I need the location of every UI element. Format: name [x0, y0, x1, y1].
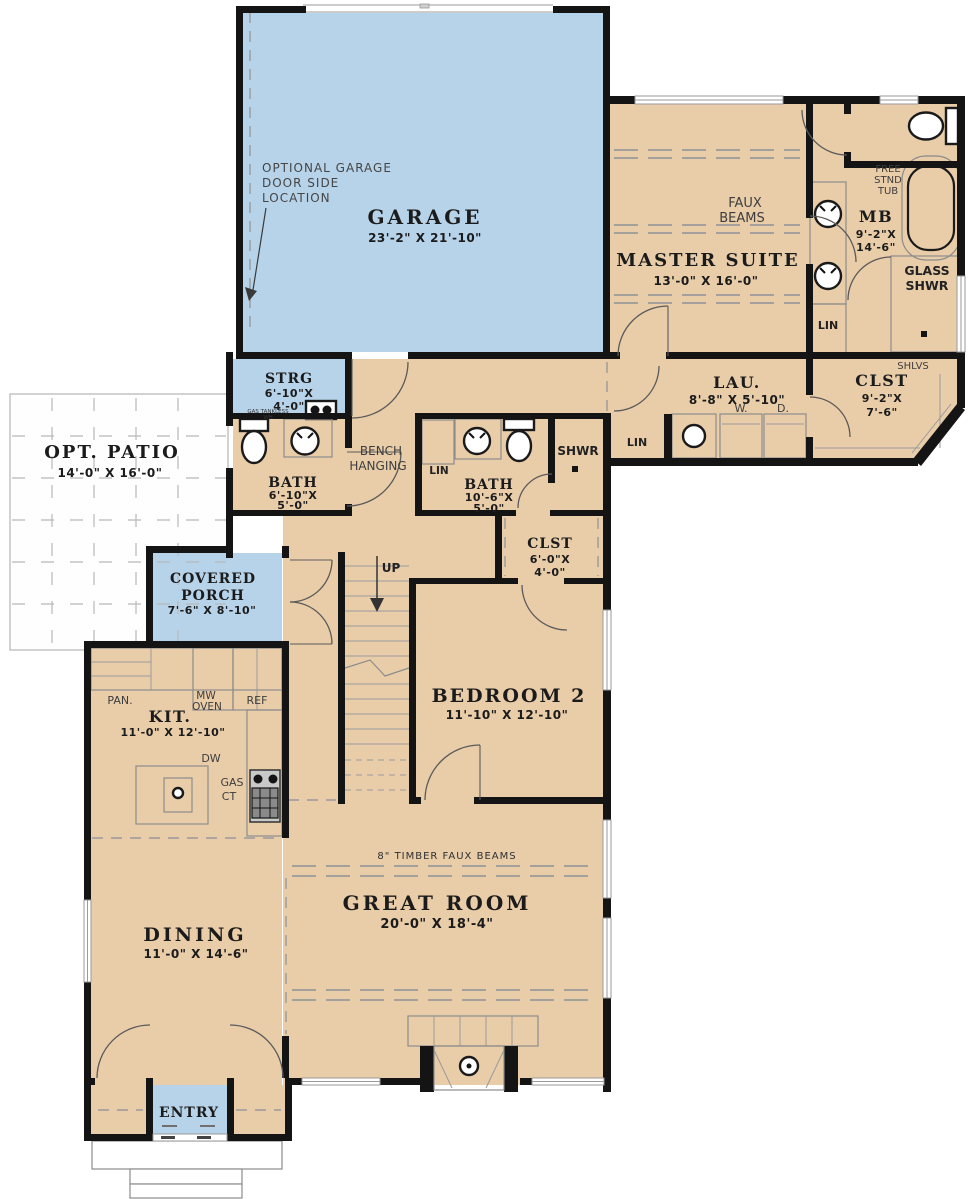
laundry-label: LAU. — [713, 373, 761, 392]
bath2-dims2: 5'-0" — [473, 502, 504, 515]
tub-label-line3: TUB — [877, 186, 898, 197]
porch-label2: PORCH — [181, 588, 245, 604]
front-door — [153, 1134, 227, 1141]
dishwasher-label: DW — [201, 752, 220, 765]
window — [603, 820, 611, 898]
washer-label: W. — [734, 402, 747, 415]
mb-sink-1 — [815, 201, 841, 227]
bench-label1: BENCH — [360, 444, 402, 458]
master-bath-dims1: 9'-2"X — [856, 228, 896, 241]
refrigerator-label: REF — [247, 694, 268, 707]
faux-beams-line2: BEAMS — [719, 211, 765, 226]
bedroom-closet-label: CLST — [527, 536, 573, 552]
dining-label: DINING — [143, 924, 246, 946]
stairs-up-label: UP — [382, 561, 401, 575]
laundry-sink — [683, 425, 705, 447]
timber-beams-label: 8" TIMBER FAUX BEAMS — [377, 851, 516, 862]
master-suite-dims: 13'-0" X 16'-0" — [653, 274, 758, 288]
bedroom-closet-dims2: 4'-0" — [534, 566, 565, 579]
bath2-toilet — [507, 431, 531, 461]
garage-note-line1: OPTIONAL GARAGE — [262, 161, 392, 175]
bedroom-closet-dims1: 6'-0"X — [530, 553, 570, 566]
bath2-toilet-tank — [504, 419, 534, 430]
master-closet-dims1: 9'-2"X — [862, 392, 902, 405]
tub-label-line2: STND — [874, 175, 902, 186]
master-bath-dims2: 14'-6" — [856, 241, 896, 254]
glass-shower-label1: GLASS — [904, 263, 949, 278]
hall-linen-label: LIN — [627, 436, 647, 449]
great-room-label: GREAT ROOM — [343, 891, 532, 915]
pantry-label: PAN. — [107, 694, 132, 707]
shower-head — [921, 331, 927, 337]
cooktop-label1: GAS — [220, 776, 243, 789]
bath1-dims2: 5'-0" — [277, 499, 308, 512]
storage-label: STRG — [265, 371, 313, 387]
floor-plan-page: OPTIONAL GARAGE DOOR SIDE LOCATION GARAG… — [0, 0, 970, 1199]
window — [880, 96, 918, 104]
garage-label: GARAGE — [367, 205, 482, 229]
bath2-shower-head — [572, 466, 578, 472]
glass-shower-label2: SHWR — [906, 278, 949, 293]
window — [302, 1078, 380, 1085]
microwave-label2: OVEN — [192, 701, 222, 713]
faux-beams-line1: FAUX — [728, 196, 762, 211]
toilet-room-toilet — [946, 108, 958, 144]
porch-label1: COVERED — [170, 571, 256, 587]
mb-sink-2 — [815, 263, 841, 289]
patio-dims: 14'-0" X 16'-0" — [57, 466, 162, 480]
window — [603, 610, 611, 690]
master-bath-label: MB — [859, 207, 893, 226]
shower-label: SHWR — [557, 444, 598, 458]
cooktop-label2: CT — [222, 790, 237, 803]
bedroom2-dims: 11'-10" X 12'-10" — [446, 708, 569, 722]
window — [957, 276, 965, 352]
bath2-sink — [464, 428, 490, 454]
garage-dims: 23'-2" X 21'-10" — [368, 231, 482, 245]
master-closet-label: CLST — [855, 371, 908, 390]
island-faucet — [173, 788, 183, 798]
window — [84, 900, 91, 982]
water-heater-label2: WH — [263, 415, 273, 421]
window — [532, 1078, 604, 1085]
floor-plan-drawing: OPTIONAL GARAGE DOOR SIDE LOCATION GARAG… — [0, 0, 970, 1199]
garage-note-line3: LOCATION — [262, 191, 331, 205]
bench-label2: HANGING — [349, 459, 406, 473]
porch-dims: 7'-6" X 8'-10" — [168, 604, 257, 617]
garage-note-line2: DOOR SIDE — [262, 176, 339, 190]
bath2-linen-label: LIN — [429, 465, 448, 477]
dining-dims: 11'-0" X 14'-6" — [143, 947, 248, 961]
dryer-label: D. — [777, 402, 789, 415]
window — [635, 96, 783, 104]
kitchen-dims: 11'-0" X 12'-10" — [120, 726, 225, 739]
mb-linen-label: LIN — [818, 319, 838, 332]
bath1-sink — [292, 428, 319, 455]
master-suite-label: MASTER SUITE — [616, 250, 799, 271]
front-step-2 — [130, 1184, 242, 1198]
front-step-1 — [130, 1169, 242, 1184]
tub-label-line1: FREE — [875, 164, 900, 175]
bath1-toilet — [242, 431, 266, 463]
storage-dims1: 6'-10"X — [265, 387, 314, 400]
great-room-dims: 20'-0" X 18'-4" — [380, 917, 493, 932]
bedroom2-label: BEDROOM 2 — [432, 685, 587, 707]
kitchen-label: KIT. — [149, 707, 192, 726]
patio-label: OPT. PATIO — [44, 442, 180, 463]
master-closet-dims2: 7'-6" — [866, 406, 897, 419]
window — [603, 918, 611, 998]
entry-label: ENTRY — [159, 1105, 219, 1121]
front-stoop — [92, 1141, 282, 1169]
